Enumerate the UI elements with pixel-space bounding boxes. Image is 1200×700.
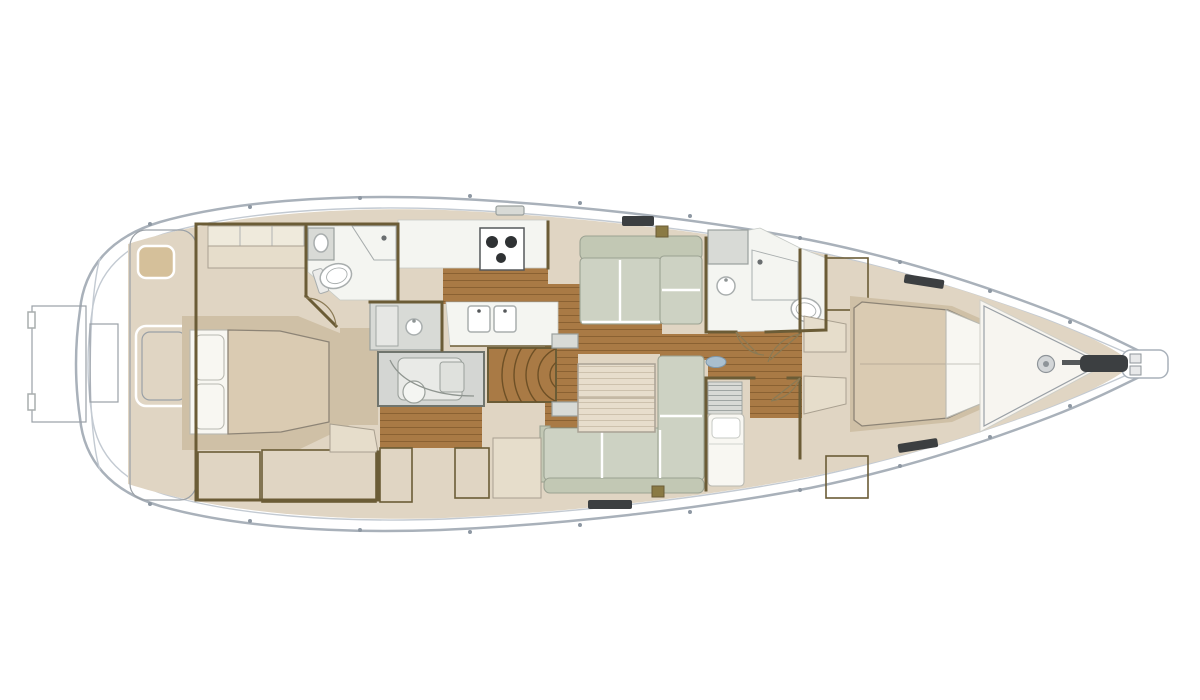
stanchion-icon xyxy=(988,435,992,439)
stanchion-icon xyxy=(798,488,802,492)
stanchion-icon xyxy=(248,205,252,209)
yacht-floorplan-image xyxy=(0,0,1200,700)
stove-burner-1 xyxy=(486,236,498,248)
platform-hinge-top xyxy=(28,312,35,328)
utility-faucet-icon xyxy=(412,319,416,323)
bunk-pillow xyxy=(712,418,740,438)
stanchion-icon xyxy=(358,196,362,200)
bow-fitting-2 xyxy=(1130,366,1141,375)
aft-shower-head-icon xyxy=(381,235,386,240)
stanchion-icon xyxy=(988,289,992,293)
sliding-hatch xyxy=(496,206,524,215)
galley-floor xyxy=(443,268,548,304)
stair-landing-bottom xyxy=(552,402,578,416)
forward-lobby xyxy=(750,328,802,418)
stanchion-icon xyxy=(248,519,252,523)
stanchion-icon xyxy=(468,530,472,534)
stanchion-icon xyxy=(578,201,582,205)
mast-step xyxy=(706,357,726,368)
deck-box-port xyxy=(656,226,668,237)
galley-stove xyxy=(480,228,524,270)
owner-pillow-port xyxy=(195,335,224,380)
forward-head-cabinet xyxy=(708,230,748,264)
sink-faucet-1-icon xyxy=(477,309,481,313)
stanchion-icon xyxy=(468,194,472,198)
stanchion-icon xyxy=(688,510,692,514)
engine-pulley-icon xyxy=(403,381,425,403)
aft-head xyxy=(308,226,396,300)
cockpit-seat xyxy=(138,246,174,278)
sink-faucet-2-icon xyxy=(503,309,507,313)
bowsprit-plate xyxy=(1122,350,1168,378)
nav-desk xyxy=(493,438,541,498)
stanchion-icon xyxy=(358,528,362,532)
stbd-sofa-back xyxy=(544,478,704,493)
floorplan-svg xyxy=(0,0,1200,700)
owner-bed-duvet xyxy=(228,330,329,434)
utility-cabinet xyxy=(376,306,398,346)
windlass-gypsy-icon xyxy=(1043,361,1049,367)
stanchion-icon xyxy=(688,214,692,218)
stanchion-icon xyxy=(898,464,902,468)
stanchion-icon xyxy=(148,502,152,506)
stove-burner-3 xyxy=(496,253,506,263)
deck-box-stbd xyxy=(652,486,664,497)
starboard-corridor xyxy=(380,406,482,448)
stanchion-icon xyxy=(798,236,802,240)
deck-hatch-stbd-mid xyxy=(588,500,632,509)
anchor-roller xyxy=(1080,355,1128,372)
stanchion-icon xyxy=(898,260,902,264)
stanchion-icon xyxy=(578,523,582,527)
forward-sink-faucet-icon xyxy=(724,278,728,282)
galley-counter-aft xyxy=(398,220,548,268)
platform-hinge-bottom xyxy=(28,394,35,410)
stanchion-icon xyxy=(1068,404,1072,408)
stanchion-icon xyxy=(1068,320,1072,324)
aft-head-sink xyxy=(314,234,328,252)
forward-shower-head-icon xyxy=(757,259,762,264)
bow-fitting-1 xyxy=(1130,354,1141,363)
stair-landing-top xyxy=(552,334,578,348)
stove-burner-2 xyxy=(505,236,517,248)
bunk-cabin-locker xyxy=(708,382,742,414)
stbd-sofa-chaise xyxy=(658,356,704,480)
deck-hatch-port-mid xyxy=(622,216,654,226)
owner-pillow-starboard xyxy=(195,384,224,429)
forward-corridor xyxy=(708,330,754,378)
stanchion-icon xyxy=(148,222,152,226)
engine-gearbox-icon xyxy=(440,362,464,392)
